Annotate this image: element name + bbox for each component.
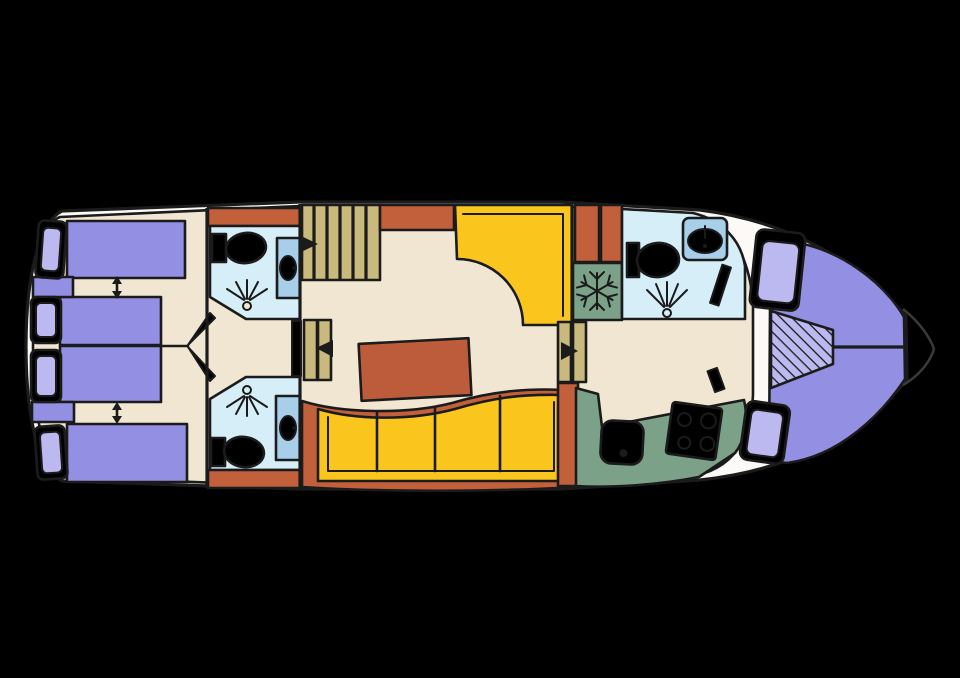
locker-orange-1	[575, 205, 599, 262]
trim-strip-top	[380, 205, 454, 230]
bow-cushion-frame-top	[749, 229, 806, 312]
nightstand-top	[33, 277, 73, 297]
nightstand-bottom	[32, 402, 74, 422]
pillow-4	[40, 431, 63, 473]
toilet-icon	[627, 241, 680, 279]
bed-mid-lower	[60, 346, 161, 402]
bed-aft-top	[67, 221, 185, 278]
trim-strip	[208, 470, 302, 488]
bed-aft-bottom	[67, 424, 187, 482]
fridge	[573, 263, 622, 320]
entry-stairs	[301, 205, 380, 280]
saloon-table	[359, 338, 472, 401]
pillow-2	[36, 303, 56, 337]
pillow-frame-4	[34, 425, 68, 480]
steps-down-fwd	[558, 322, 586, 382]
boat-floor-plan	[0, 0, 960, 678]
bathroom-top-left	[208, 208, 302, 319]
corridor-door-leaf	[292, 321, 301, 376]
pillow-3	[36, 356, 56, 396]
stove-icon	[666, 402, 723, 460]
floor-plan-canvas	[0, 0, 960, 678]
bathroom-bottom-left	[208, 377, 302, 488]
bed-mid-upper	[60, 297, 161, 345]
washbasin-icon	[276, 396, 300, 460]
pillow-frame-1	[35, 220, 67, 279]
bathroom-right	[622, 209, 745, 319]
locker-orange-2	[601, 205, 622, 262]
washbasin-icon	[277, 238, 300, 298]
pillow-1	[40, 227, 61, 271]
bow-cushion-top	[757, 240, 800, 304]
washbasin-icon	[683, 218, 727, 260]
bow-cushion-bottom	[746, 409, 784, 458]
steps-down-aft	[304, 320, 333, 380]
bow-cushion-frame-bottom	[739, 400, 791, 465]
galley-sink-icon	[600, 420, 644, 465]
trim-strip	[208, 208, 302, 226]
pillow-frame-2	[31, 297, 61, 343]
pillow-frame-3	[31, 350, 61, 402]
